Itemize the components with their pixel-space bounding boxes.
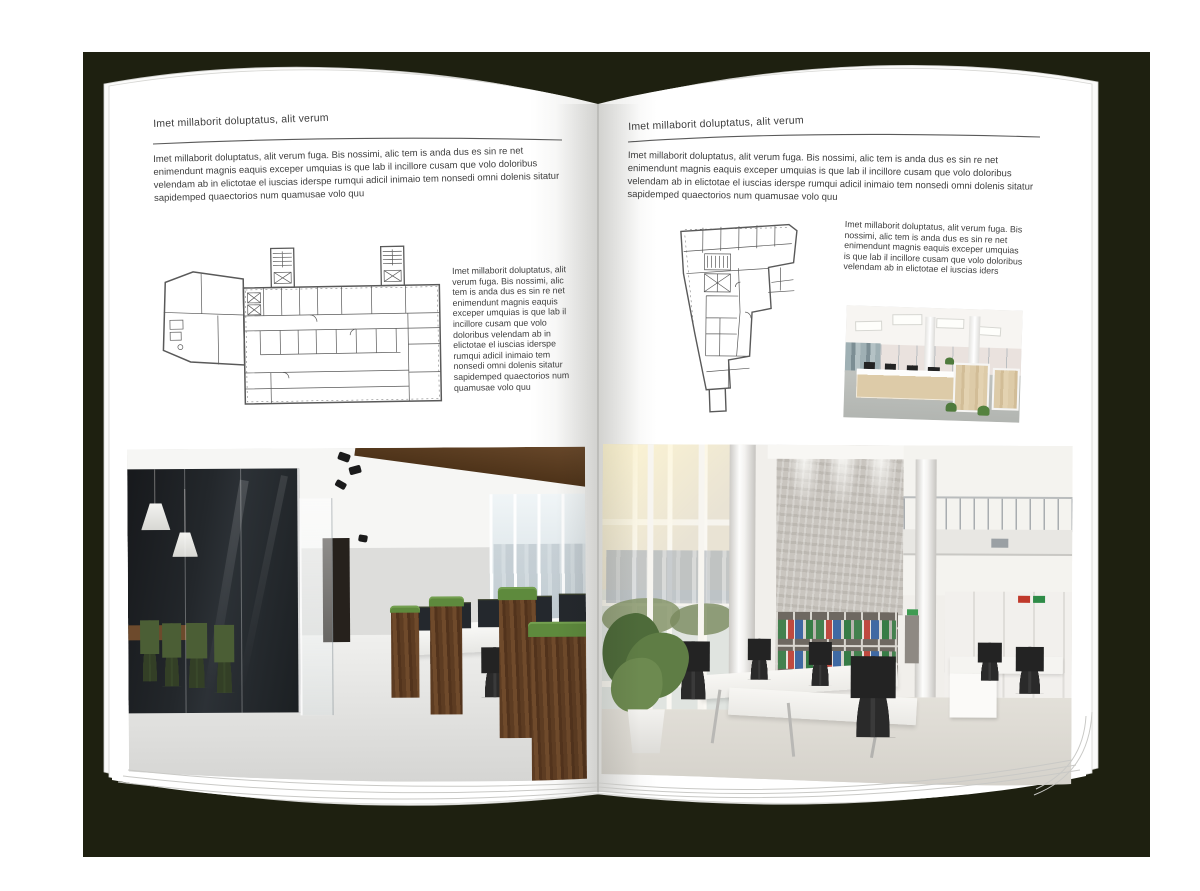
office-chair <box>1015 646 1043 694</box>
right-page-intro: Imet millaborit doluptatus, alit verum f… <box>627 149 1042 207</box>
corridor-door <box>905 615 919 663</box>
planter-grass <box>390 605 420 613</box>
binder-row <box>778 620 895 639</box>
glass-frame-joint <box>184 469 186 713</box>
planter-grass <box>497 587 537 600</box>
left-page-side-text: Imet millaborit doluptatus, alit verum f… <box>452 264 572 393</box>
floor-plant <box>977 406 990 416</box>
office-chair <box>747 638 771 679</box>
exit-sign <box>907 610 918 616</box>
safety-sign-red <box>1018 595 1030 603</box>
vent-grille <box>991 538 1008 547</box>
green-chair <box>214 625 235 693</box>
planter-grass <box>529 622 587 637</box>
floor-plant <box>946 403 957 412</box>
right-page-photo-small <box>843 305 1022 422</box>
right-header-rule <box>627 129 1042 145</box>
desk-plant <box>945 358 954 365</box>
glass-partition <box>299 498 333 715</box>
right-page-photo-large <box>601 444 1072 786</box>
left-floor-plan <box>159 240 447 410</box>
right-floor-plan <box>649 221 811 415</box>
side-desk <box>950 656 1063 673</box>
left-page-intro: Imet millaborit doluptatus, alit verum f… <box>153 144 567 205</box>
planter-grass <box>429 597 464 607</box>
office-chair <box>851 656 896 738</box>
glass-reflection <box>236 475 287 691</box>
workstation-row <box>856 368 957 400</box>
green-chair <box>186 623 207 689</box>
left-page-photo <box>127 447 587 784</box>
storage-cabinet <box>953 362 990 412</box>
ceiling-light-panel <box>855 320 882 330</box>
track-spotlight <box>358 534 368 542</box>
ceiling-light-panel <box>936 318 965 329</box>
lamp-cord <box>155 469 156 506</box>
city-buildings <box>606 550 739 604</box>
meeting-room-glass <box>127 468 300 713</box>
concrete-wall <box>776 445 904 616</box>
green-chair <box>162 623 181 687</box>
green-chair <box>140 620 159 681</box>
magazine-spread-mockup: Imet millaborit doluptatus, alit verum I… <box>0 0 1200 891</box>
storage-cabinet <box>991 368 1019 411</box>
safety-sign-green <box>1033 595 1045 603</box>
pendant-lamp <box>141 503 170 530</box>
wood-planter <box>430 604 463 714</box>
office-chair <box>808 642 832 686</box>
office-chair <box>978 643 1002 680</box>
right-page-side-text: Imet millaborit doluptatus, alit verum f… <box>843 219 1026 278</box>
corner-planter <box>531 634 587 784</box>
ceiling-light-panel <box>892 314 922 325</box>
wood-planter <box>391 611 419 698</box>
